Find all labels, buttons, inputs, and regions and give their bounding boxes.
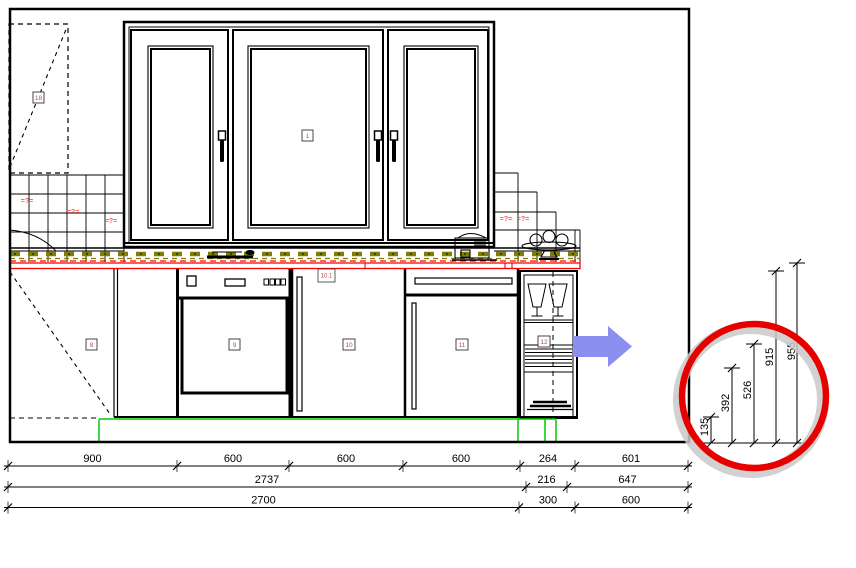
dim-value: 600 — [622, 495, 640, 507]
wine-glass-icon — [528, 284, 567, 316]
corner-base-label[interactable]: 8 — [86, 339, 97, 350]
door-handle-icon — [375, 131, 382, 162]
tile-mark: =?= — [67, 209, 79, 216]
corner-base-label-text: 8 — [90, 342, 94, 349]
tall-cabinet-label[interactable]: 11 — [456, 339, 468, 350]
dishwasher-label[interactable]: 9 — [229, 339, 240, 350]
dim-value: 600 — [224, 453, 242, 465]
shelf-unit-label-text: 12 — [540, 339, 548, 346]
dim-value: 135 — [699, 418, 711, 436]
tile-mark: =?= — [21, 198, 33, 205]
dimension-labels-row1: 900 600 600 600 264 601 — [83, 453, 640, 465]
arrow-right-icon — [573, 326, 632, 367]
dim-value: 600 — [337, 453, 355, 465]
shelf-unit-label[interactable]: 12 — [538, 336, 550, 347]
dim-value: 900 — [83, 453, 101, 465]
tile-marks: =?= =?= =?= =?= =?= — [21, 198, 529, 225]
dim-value: 2700 — [251, 495, 275, 507]
tall-cabinet-label-text: 11 — [459, 342, 466, 349]
tile-mark: =?= — [500, 216, 512, 223]
corner-base-cabinet[interactable] — [10, 269, 118, 418]
shelf-slats — [524, 345, 573, 372]
dim-value: 647 — [618, 474, 636, 486]
kitchen-elevation-canvas: 18 — [0, 0, 856, 568]
base-cabinet-label[interactable]: 10 — [343, 339, 355, 350]
tile-mark: =?= — [105, 218, 117, 225]
door-handle-icon — [391, 131, 398, 162]
dim-value: 526 — [742, 381, 754, 399]
wall-cabinet-label[interactable]: 1 — [302, 130, 313, 141]
wall-cabinet-door-right[interactable] — [388, 30, 488, 240]
wall-cabinet-label-text: 1 — [306, 133, 310, 140]
tile-mark: =?= — [517, 216, 529, 223]
base-cabinet-top-label-text: 10.1 — [321, 274, 333, 280]
plinth-lines — [99, 419, 556, 441]
dim-value: 915 — [764, 348, 776, 366]
dimension-labels-row3: 2700 300 600 — [251, 495, 640, 507]
dim-value: 300 — [539, 495, 557, 507]
dimension-rows — [4, 460, 692, 514]
cad-drawing: 18 — [0, 0, 856, 568]
dim-value: 216 — [537, 474, 555, 486]
dim-value: 264 — [539, 453, 557, 465]
dim-value: 601 — [622, 453, 640, 465]
door-handle-icon — [219, 131, 226, 162]
dishwasher-buttons-icon — [264, 279, 286, 285]
dishwasher-label-text: 9 — [233, 342, 237, 349]
window-label[interactable]: 18 — [33, 92, 44, 103]
dimension-labels-row2: 2737 216 647 — [255, 474, 637, 486]
base-cabinet-label-text: 10 — [345, 342, 353, 349]
dim-value: 392 — [720, 394, 732, 412]
window-label-text: 18 — [35, 95, 43, 102]
dim-value: 2737 — [255, 474, 279, 486]
wall-cabinet-door-left[interactable] — [131, 30, 228, 240]
dim-value: 600 — [452, 453, 470, 465]
base-cabinet-top-label[interactable]: 10.1 — [318, 269, 335, 282]
vertical-dimension-labels: 135 392 526 915 955 — [699, 342, 798, 436]
fruit-bowl-icon — [522, 231, 576, 260]
